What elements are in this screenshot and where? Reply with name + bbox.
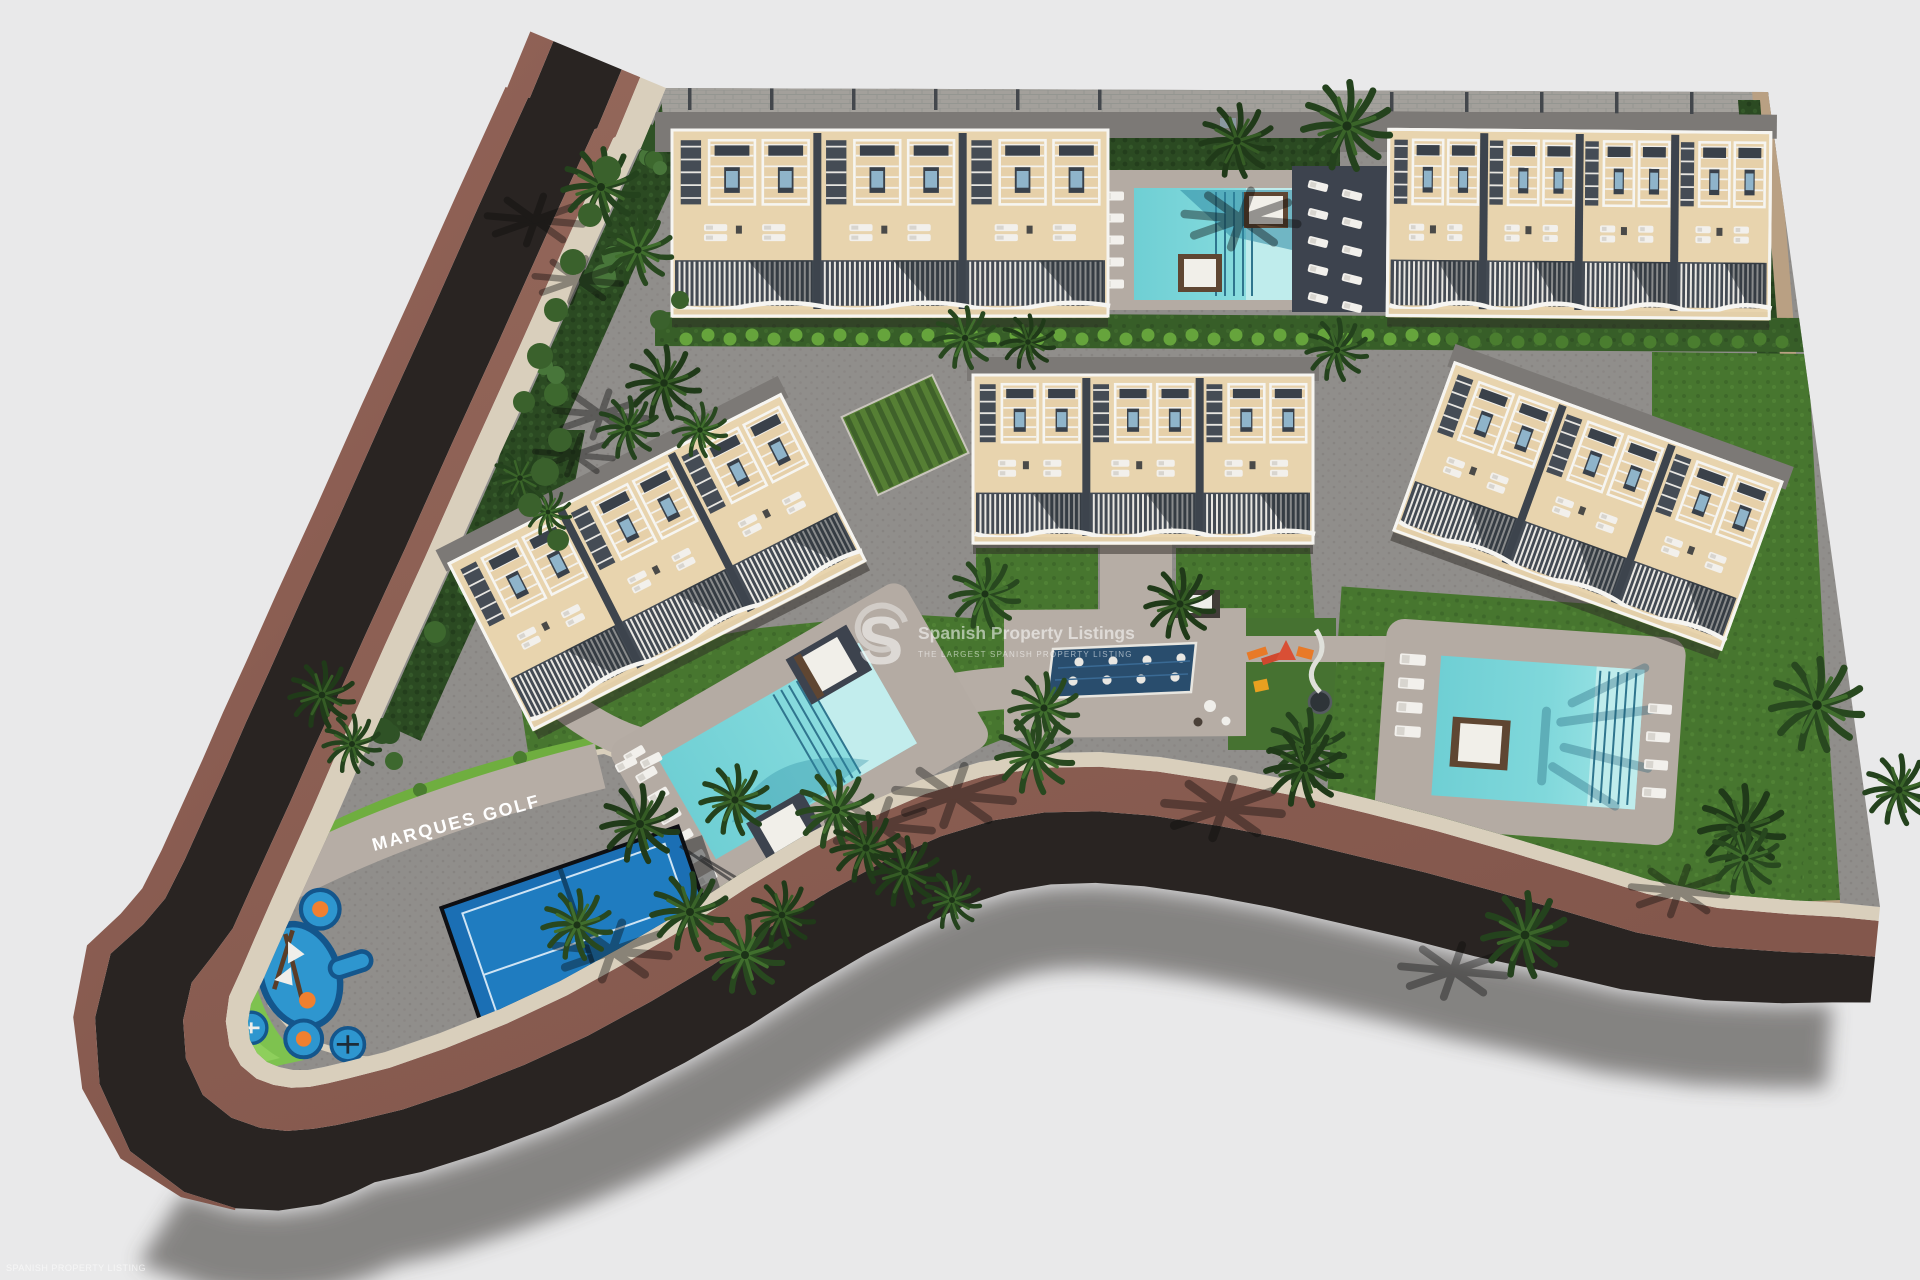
svg-text:Spanish Property Listings: Spanish Property Listings <box>918 623 1135 643</box>
svg-text:THE LARGEST SPANISH PROPERTY L: THE LARGEST SPANISH PROPERTY LISTING <box>918 650 1133 659</box>
svg-text:SPANISH PROPERTY LISTING: SPANISH PROPERTY LISTING <box>6 1263 146 1273</box>
